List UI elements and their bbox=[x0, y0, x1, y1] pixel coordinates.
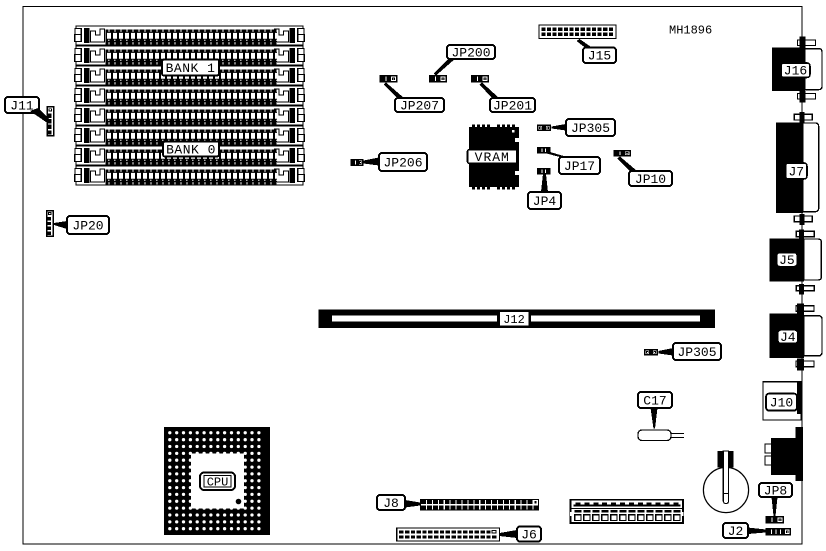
svg-text:C17: C17 bbox=[643, 393, 666, 408]
svg-text:MH1896: MH1896 bbox=[669, 24, 712, 38]
svg-text:JP20: JP20 bbox=[72, 218, 103, 233]
svg-text:J16: J16 bbox=[784, 64, 807, 79]
svg-text:J7: J7 bbox=[788, 164, 804, 179]
svg-text:JP17: JP17 bbox=[564, 159, 595, 174]
svg-text:JP10: JP10 bbox=[635, 172, 666, 187]
svg-text:J12: J12 bbox=[503, 313, 525, 327]
svg-text:JP305: JP305 bbox=[677, 345, 716, 360]
svg-text:BANK 0: BANK 0 bbox=[166, 142, 216, 157]
svg-text:J6: J6 bbox=[521, 527, 537, 542]
svg-text:JP4: JP4 bbox=[533, 194, 557, 209]
svg-text:JP8: JP8 bbox=[764, 483, 787, 498]
svg-text:J15: J15 bbox=[588, 49, 611, 64]
svg-text:BANK 1: BANK 1 bbox=[166, 61, 216, 76]
svg-text:JP201: JP201 bbox=[493, 98, 532, 113]
svg-text:J4: J4 bbox=[780, 330, 796, 345]
svg-text:JP200: JP200 bbox=[451, 45, 490, 60]
svg-text:JP207: JP207 bbox=[400, 98, 439, 113]
svg-text:VRAM: VRAM bbox=[475, 150, 510, 165]
svg-text:JP305: JP305 bbox=[571, 121, 610, 136]
svg-text:JP206: JP206 bbox=[383, 155, 422, 170]
svg-text:J2: J2 bbox=[728, 524, 744, 539]
svg-text:J8: J8 bbox=[383, 496, 399, 511]
svg-text:CPU: CPU bbox=[207, 476, 229, 490]
svg-text:J10: J10 bbox=[770, 395, 793, 410]
svg-text:J5: J5 bbox=[779, 253, 795, 268]
